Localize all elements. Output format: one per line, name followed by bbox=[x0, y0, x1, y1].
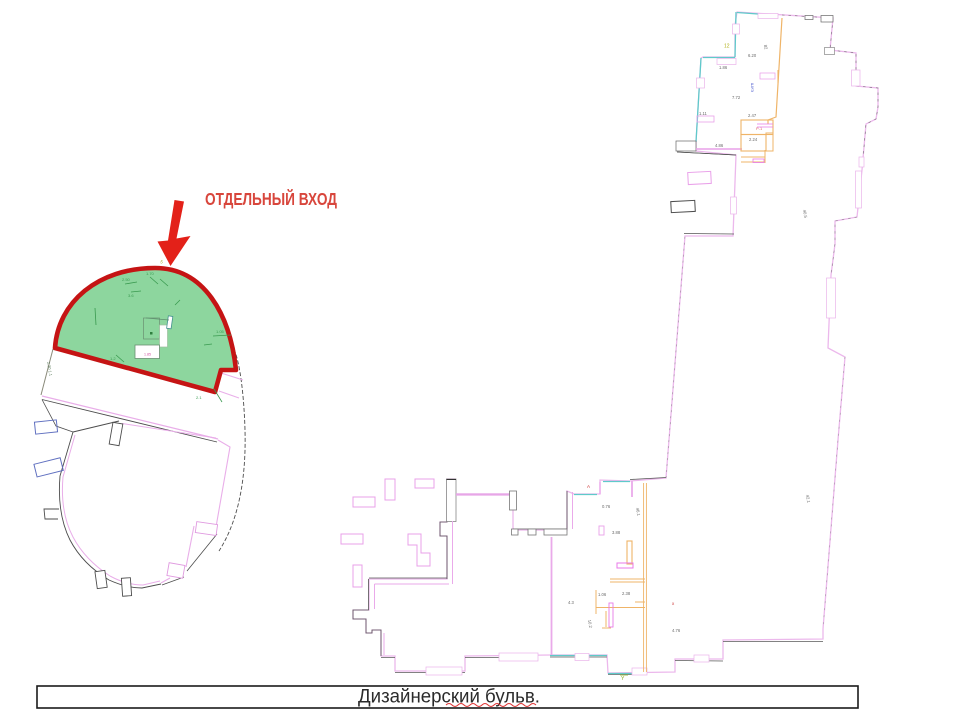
svg-text:3.88: 3.88 bbox=[612, 530, 621, 535]
svg-text:6.20: 6.20 bbox=[748, 53, 757, 58]
svg-text:2.38: 2.38 bbox=[622, 591, 631, 596]
svg-text:ШУЭ: ШУЭ bbox=[750, 83, 755, 92]
svg-text:P-1: P-1 bbox=[756, 126, 763, 131]
svg-text:1.70: 1.70 bbox=[146, 271, 155, 276]
svg-text:2.50: 2.50 bbox=[122, 277, 131, 282]
svg-text:1.2: 1.2 bbox=[110, 356, 116, 361]
svg-text:7.72: 7.72 bbox=[732, 95, 741, 100]
svg-text:4.86: 4.86 bbox=[715, 143, 724, 148]
svg-text:1.85: 1.85 bbox=[144, 353, 151, 357]
svg-text:1.11: 1.11 bbox=[699, 111, 708, 116]
svg-text:1.06: 1.06 bbox=[598, 592, 607, 597]
svg-text:4.3: 4.3 bbox=[568, 600, 574, 605]
svg-text:1.86: 1.86 bbox=[719, 65, 728, 70]
svg-text:2.1: 2.1 bbox=[196, 395, 202, 400]
svg-text:2.24: 2.24 bbox=[749, 137, 758, 142]
svg-text:ОТДЕЛЬНЫЙ ВХОД: ОТДЕЛЬНЫЙ ВХОД bbox=[205, 188, 337, 209]
svg-text:12: 12 bbox=[724, 44, 730, 50]
svg-text:A: A bbox=[587, 484, 590, 489]
svg-text:Дизайнерский бульв.: Дизайнерский бульв. bbox=[358, 687, 540, 708]
svg-text:1.05: 1.05 bbox=[216, 329, 225, 334]
svg-text:4.76: 4.76 bbox=[672, 628, 681, 633]
svg-text:0.76: 0.76 bbox=[602, 504, 611, 509]
svg-text:3.6: 3.6 bbox=[128, 293, 134, 298]
svg-text:2.47: 2.47 bbox=[748, 113, 757, 118]
